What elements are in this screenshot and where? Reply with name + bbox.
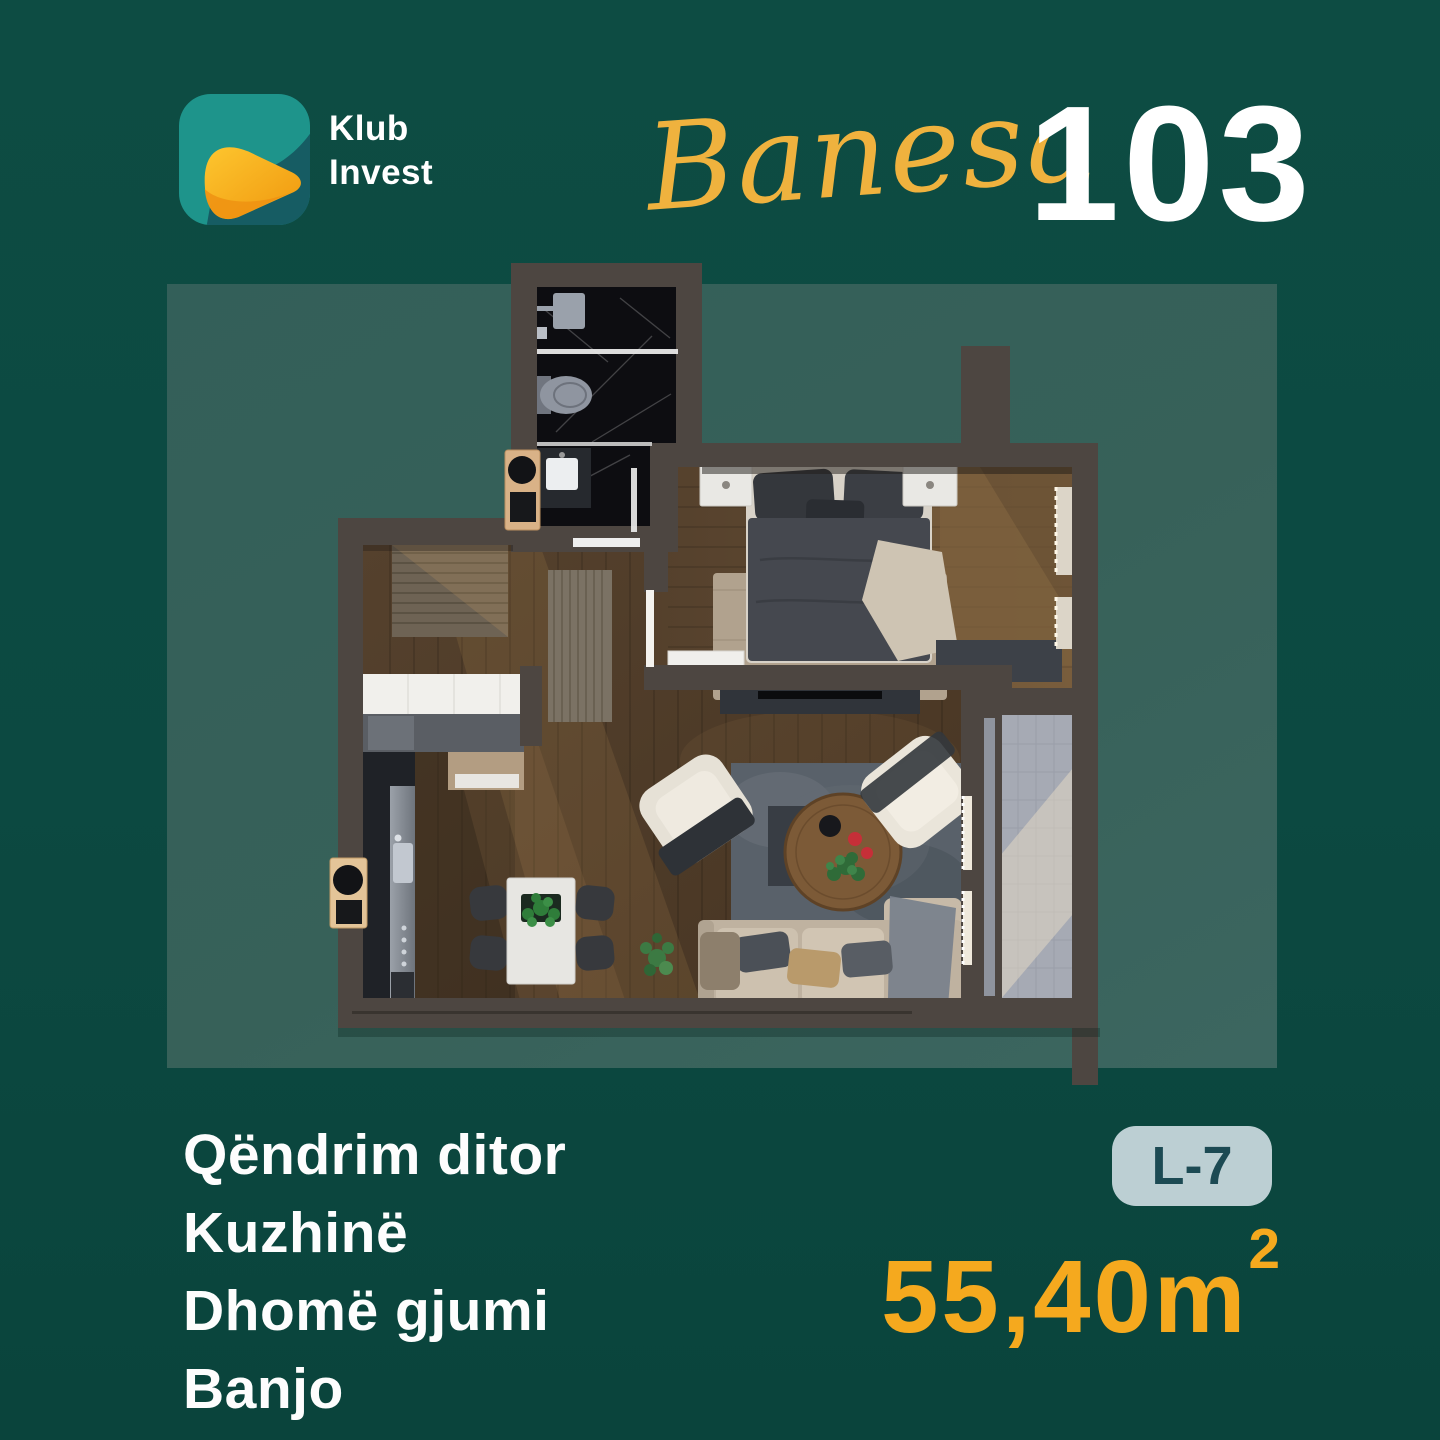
tv-console: [720, 687, 920, 714]
brand-line2: Invest: [329, 151, 433, 195]
balcony-sill: [984, 718, 995, 996]
unit-badge: L-7: [1112, 1126, 1272, 1206]
brand-line1: Klub: [329, 107, 433, 151]
room-item: Dhomë gjumi: [183, 1272, 566, 1350]
balcony-area: [1000, 715, 1073, 1000]
room-item: Banjo: [183, 1350, 566, 1428]
area-unit: m: [1154, 1239, 1249, 1354]
area-value: 55,40: [881, 1239, 1154, 1354]
bedroom-door: [646, 590, 654, 667]
wall-seam: [352, 1011, 912, 1014]
wall-shadow: [363, 545, 513, 551]
room-item: Qëndrim ditor: [183, 1116, 566, 1194]
wall-shadow: [702, 467, 1072, 474]
brand-name: Klub Invest: [329, 107, 433, 195]
unit-area: 55,40m2: [620, 1238, 1280, 1356]
wood-vanity-unit: [505, 450, 540, 530]
plan-drop-shadow: [338, 1028, 1100, 1037]
unit-badge-label: L-7: [1152, 1135, 1233, 1197]
area-exponent: 2: [1248, 1218, 1280, 1281]
washing-unit: [330, 858, 367, 928]
room-item: Kuzhinë: [183, 1194, 566, 1272]
title-number: 103: [1028, 70, 1314, 258]
room-list: Qëndrim ditor Kuzhinë Dhomë gjumi Banjo: [183, 1116, 566, 1428]
window: [1056, 487, 1072, 649]
klub-invest-logo-icon: [179, 94, 310, 225]
toilet: [537, 376, 592, 414]
